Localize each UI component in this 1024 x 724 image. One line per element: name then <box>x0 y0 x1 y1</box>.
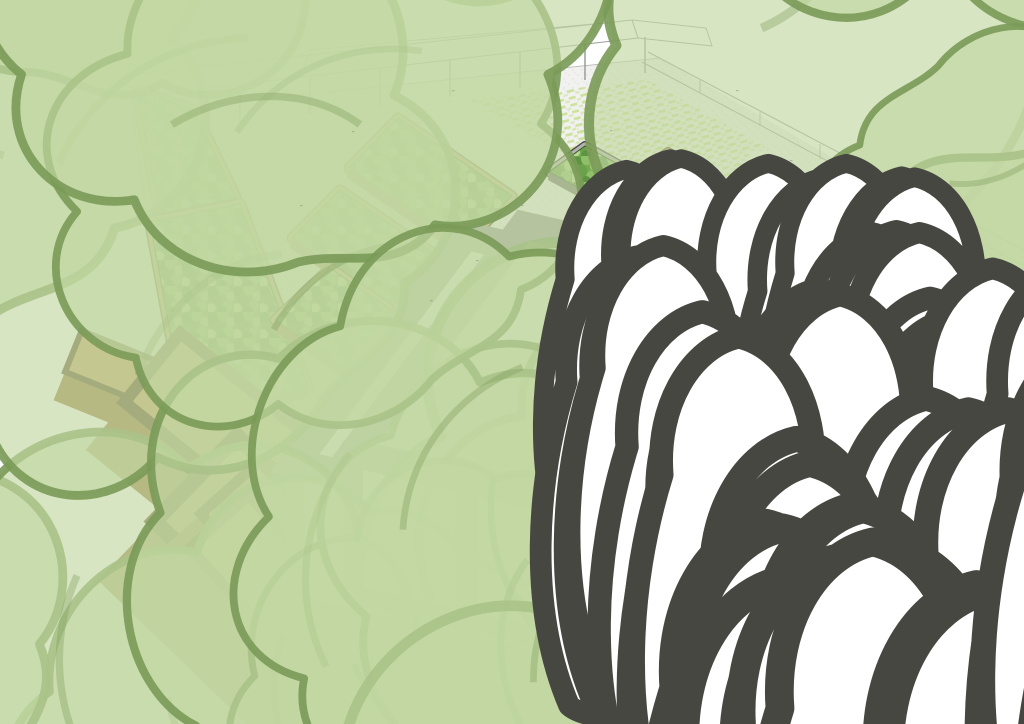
plaza-visualization-canvas <box>0 0 1024 724</box>
landscape-visualization <box>0 0 1024 724</box>
people <box>541 159 1024 724</box>
